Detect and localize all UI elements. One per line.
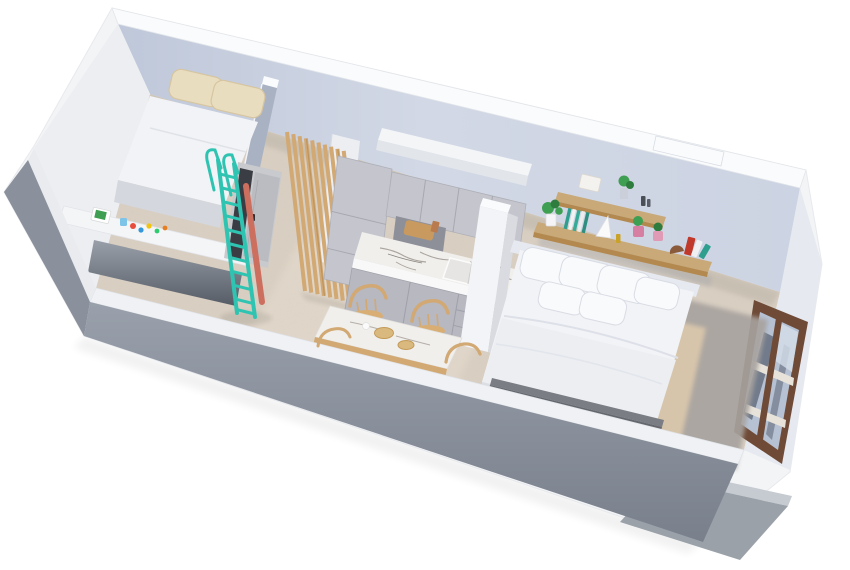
toy-blue [138,227,143,232]
small-bottle2 [647,199,651,207]
plant-leaves3 [555,207,563,215]
floorplan-svg [0,0,850,570]
pink-pot [633,226,644,237]
shelf-plant-top2 [626,181,634,189]
toy-orange [163,226,168,231]
blue-cup [120,218,127,226]
succulent2 [654,223,663,232]
chair-spindle [437,314,438,326]
toy-green [155,229,160,234]
toy-yellow [146,223,151,228]
plant-leaves2 [551,200,560,209]
toy-red [130,223,136,229]
small-bottle [641,196,646,206]
chair-spindle [375,299,376,311]
wood-bowl [375,328,394,339]
white-cup [363,323,370,330]
wood-bowl2 [398,341,414,350]
apartment-render [0,0,850,570]
white-pot [546,214,556,226]
gold-ornament [616,234,621,243]
succulent [633,216,643,226]
glass-vase [620,188,628,199]
pink-pot2 [653,231,663,241]
